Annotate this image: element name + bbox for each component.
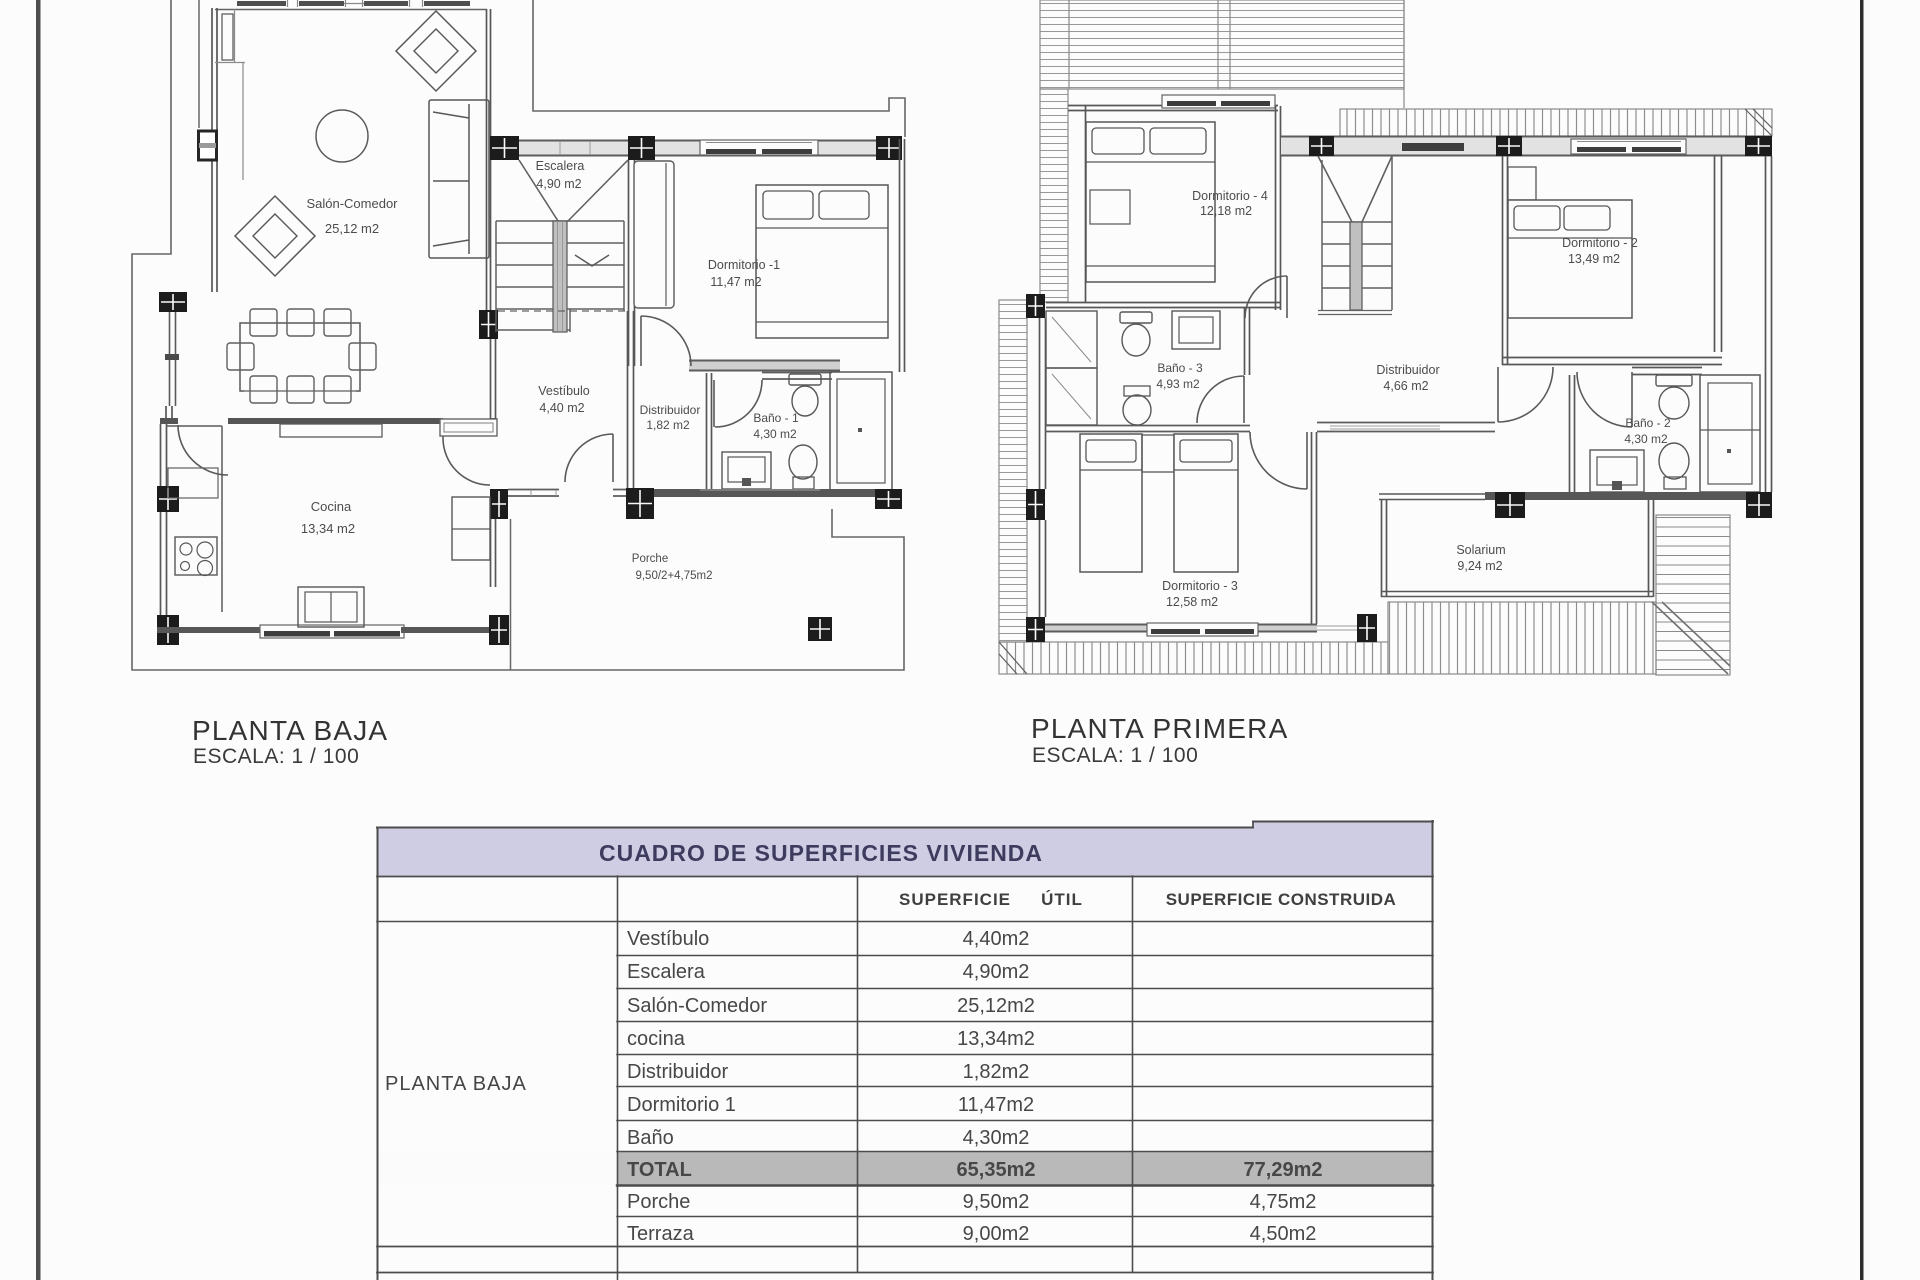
svg-text:ESCALA: 1 / 100: ESCALA: 1 / 100 <box>193 745 359 768</box>
svg-text:9,50/2+4,75m2: 9,50/2+4,75m2 <box>635 570 712 582</box>
svg-text:9,50m2: 9,50m2 <box>963 1191 1030 1213</box>
svg-text:12,58 m2: 12,58 m2 <box>1166 595 1218 609</box>
svg-text:1,82m2: 1,82m2 <box>963 1061 1030 1083</box>
svg-text:13,34m2: 13,34m2 <box>957 1028 1035 1050</box>
svg-text:12,18 m2: 12,18 m2 <box>1200 204 1252 218</box>
svg-text:Porche: Porche <box>632 553 668 565</box>
svg-text:4,30 m2: 4,30 m2 <box>1624 432 1668 446</box>
svg-text:Distribuidor: Distribuidor <box>1376 363 1439 377</box>
svg-text:1,82 m2: 1,82 m2 <box>646 418 690 432</box>
svg-text:Vestíbulo: Vestíbulo <box>538 384 589 398</box>
svg-text:4,40 m2: 4,40 m2 <box>539 401 584 415</box>
svg-text:Salón-Comedor: Salón-Comedor <box>627 995 767 1017</box>
svg-text:ÚTIL: ÚTIL <box>1041 890 1083 909</box>
svg-text:11,47m2: 11,47m2 <box>958 1094 1034 1116</box>
svg-text:4,90 m2: 4,90 m2 <box>536 177 581 191</box>
svg-text:TOTAL: TOTAL <box>627 1159 692 1181</box>
svg-text:4,30m2: 4,30m2 <box>963 1127 1030 1149</box>
svg-text:Dormitorio 1: Dormitorio 1 <box>627 1094 736 1116</box>
svg-text:Baño: Baño <box>627 1127 674 1149</box>
svg-text:77,29m2: 77,29m2 <box>1244 1159 1323 1181</box>
svg-text:Escalera: Escalera <box>627 961 706 983</box>
svg-text:4,75m2: 4,75m2 <box>1250 1191 1317 1213</box>
svg-text:Dormitorio - 4: Dormitorio - 4 <box>1192 189 1268 203</box>
svg-text:cocina: cocina <box>627 1028 686 1050</box>
svg-text:Terraza: Terraza <box>627 1223 695 1245</box>
svg-text:Cocina: Cocina <box>311 499 352 514</box>
svg-text:25,12 m2: 25,12 m2 <box>325 221 379 236</box>
svg-text:Baño - 3: Baño - 3 <box>1157 361 1203 375</box>
svg-text:11,47 m2: 11,47 m2 <box>710 275 761 289</box>
svg-text:65,35m2: 65,35m2 <box>957 1159 1036 1181</box>
svg-text:13,49 m2: 13,49 m2 <box>1568 252 1620 266</box>
svg-text:4,66 m2: 4,66 m2 <box>1383 379 1428 393</box>
svg-text:4,40m2: 4,40m2 <box>963 928 1030 950</box>
svg-text:4,90m2: 4,90m2 <box>963 961 1030 983</box>
svg-text:ESCALA: 1 / 100: ESCALA: 1 / 100 <box>1032 744 1198 767</box>
svg-text:PLANTA PRIMERA: PLANTA PRIMERA <box>1031 713 1288 744</box>
svg-text:Salón-Comedor: Salón-Comedor <box>306 196 398 211</box>
svg-text:Dormitorio - 3: Dormitorio - 3 <box>1162 579 1238 593</box>
svg-text:Baño - 2: Baño - 2 <box>1625 416 1671 430</box>
svg-text:PLANTA BAJA: PLANTA BAJA <box>385 1073 527 1095</box>
svg-text:Porche: Porche <box>627 1191 690 1213</box>
svg-text:SUPERFICIE: SUPERFICIE <box>899 890 1011 909</box>
svg-text:Dormitorio -1: Dormitorio -1 <box>708 258 780 272</box>
svg-text:Baño - 1: Baño - 1 <box>753 411 799 425</box>
svg-text:Vestíbulo: Vestíbulo <box>627 928 709 950</box>
svg-text:9,00m2: 9,00m2 <box>963 1223 1030 1245</box>
svg-text:Solarium: Solarium <box>1456 543 1505 557</box>
svg-text:13,34 m2: 13,34 m2 <box>301 521 355 536</box>
svg-text:Distribuidor: Distribuidor <box>640 403 701 417</box>
svg-text:PLANTA BAJA: PLANTA BAJA <box>192 715 388 746</box>
svg-text:Escalera: Escalera <box>536 159 585 173</box>
svg-text:Dormitorio - 2: Dormitorio - 2 <box>1562 236 1638 250</box>
svg-text:4,50m2: 4,50m2 <box>1250 1223 1317 1245</box>
svg-text:4,93 m2: 4,93 m2 <box>1156 377 1200 391</box>
svg-text:SUPERFICIE CONSTRUIDA: SUPERFICIE CONSTRUIDA <box>1166 890 1397 909</box>
svg-text:Distribuidor: Distribuidor <box>627 1061 728 1083</box>
svg-text:9,24 m2: 9,24 m2 <box>1457 559 1502 573</box>
svg-text:4,30 m2: 4,30 m2 <box>753 427 797 441</box>
svg-text:CUADRO DE SUPERFICIES VIVIEND: CUADRO DE SUPERFICIES VIVIENDA <box>599 840 1043 866</box>
svg-text:25,12m2: 25,12m2 <box>957 995 1035 1017</box>
